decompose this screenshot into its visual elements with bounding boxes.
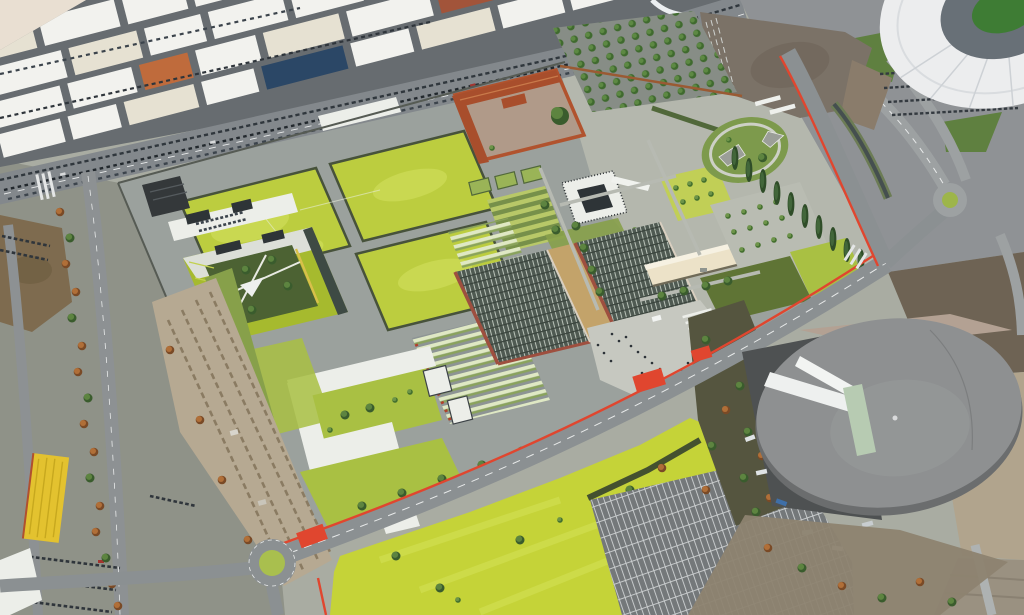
- aerial-rendering-stage: [0, 0, 1024, 615]
- aerial-masterplan-rendering: [0, 0, 1024, 615]
- roundabout-northeast: [933, 183, 967, 217]
